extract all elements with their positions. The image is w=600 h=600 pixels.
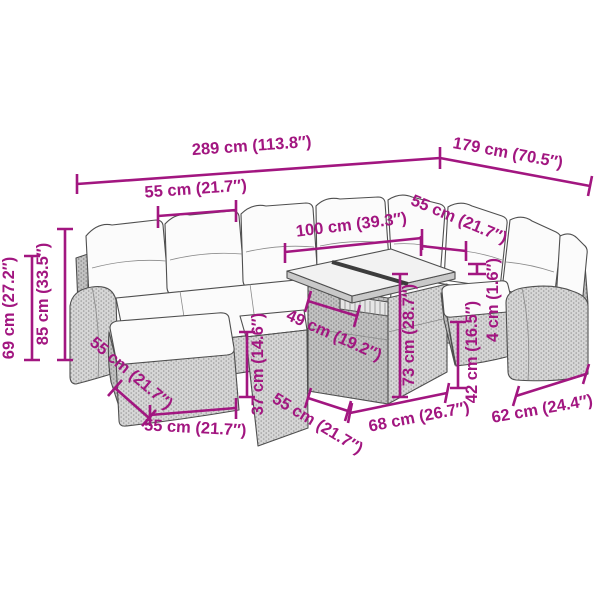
dim-total-depth-label: 179 cm (70.5″): [451, 134, 564, 172]
dim-stool-height-label: 42 cm (16.5″): [463, 301, 481, 403]
diagram-canvas: 289 cm (113.8″) 179 cm (70.5″) 55 cm (21…: [0, 0, 600, 600]
dim-ottoman-front-label: 55 cm (21.7″): [144, 416, 247, 439]
product-dimension-diagram: 289 cm (113.8″) 179 cm (70.5″) 55 cm (21…: [0, 0, 600, 600]
dim-back-height-label: 85 cm (33.5″): [34, 243, 52, 345]
dim-total-depth: 179 cm (70.5″): [440, 134, 592, 196]
dim-back-height: 85 cm (33.5″): [34, 229, 73, 360]
right-armrest: [506, 286, 588, 381]
dim-table-front-label: 68 cm (26.7″): [367, 398, 471, 435]
dim-stool-width-label: 62 cm (24.4″): [490, 391, 594, 427]
dim-total-width: 289 cm (113.8″): [77, 133, 440, 194]
dim-seat-width-left-label: 55 cm (21.7″): [144, 176, 247, 201]
dim-arm-height-label: 69 cm (27.2″): [0, 257, 18, 359]
dim-seat-height-label: 37 cm (14.6″): [249, 313, 267, 415]
dim-table-height-label: 73 cm (28.7″): [400, 284, 418, 386]
dim-total-width-label: 289 cm (113.8″): [191, 133, 312, 159]
dim-cushion-gap-label: 4 cm (1.6″): [484, 258, 502, 342]
